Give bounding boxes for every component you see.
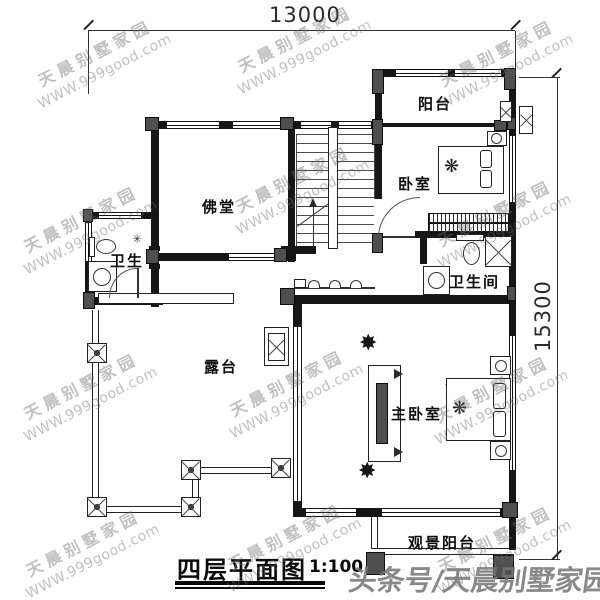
window — [306, 508, 356, 517]
title-underline — [175, 581, 325, 585]
counter-fixture — [329, 280, 341, 288]
plant-icon: ✸ — [358, 461, 376, 483]
counter-cabinet — [294, 279, 306, 288]
footer-watermark: 头条号/天晨别墅家园 — [346, 559, 600, 599]
terrace-railing — [92, 310, 99, 513]
room-label-balcony-top: 阳台 — [418, 93, 452, 114]
room-label-view-balcony: 观景阳台 — [408, 532, 476, 553]
window — [99, 212, 141, 219]
toilet-bowl — [463, 242, 480, 265]
wall — [151, 121, 159, 251]
window — [167, 121, 219, 129]
column-pier — [83, 292, 95, 309]
stair-stringer — [328, 127, 338, 249]
column-pier — [280, 117, 294, 130]
window — [293, 327, 302, 501]
extension-line — [519, 77, 560, 78]
wall — [509, 517, 516, 550]
planter-box-inner — [268, 333, 285, 361]
wardrobe — [428, 213, 509, 233]
column-ornament — [181, 497, 201, 517]
toilet-tank — [456, 234, 484, 241]
wall — [381, 123, 497, 127]
column-pier — [274, 248, 287, 262]
toilet-tank — [89, 237, 95, 257]
washbasin — [428, 272, 445, 289]
column-pier — [372, 69, 384, 94]
washbasin — [93, 268, 111, 286]
pillow — [480, 170, 492, 188]
window — [382, 508, 500, 517]
arrow-icon — [394, 447, 403, 457]
window — [396, 69, 448, 77]
plant-pot — [495, 445, 507, 457]
room-label-buddha-hall: 佛堂 — [202, 196, 236, 217]
dimension-line-top — [88, 30, 515, 31]
column-ornament — [87, 343, 107, 363]
pillow — [480, 150, 492, 168]
blanket-pattern-icon: ❋ — [452, 400, 467, 418]
pillow — [493, 383, 506, 409]
counter-fixture — [350, 280, 362, 288]
room-label-bedroom: 卧室 — [398, 173, 432, 194]
door-leaf — [137, 268, 139, 298]
room-label-terrace: 露台 — [204, 356, 238, 377]
arrowhead-icon — [309, 198, 317, 207]
extension-line — [515, 31, 516, 71]
dimension-tick — [510, 20, 520, 30]
tv-screen — [376, 383, 388, 444]
plan-title: 四层平面图 — [177, 550, 307, 585]
window — [301, 121, 331, 129]
column-ornament — [181, 460, 201, 480]
stair-direction-line — [313, 206, 314, 248]
wall — [288, 121, 295, 262]
dimension-height-label: 15300 — [531, 290, 555, 352]
ac-unit-symbol — [519, 106, 533, 134]
column-pier — [145, 117, 159, 131]
room-label-bathroom-left: 卫生 — [110, 250, 144, 271]
wall — [293, 295, 516, 304]
watermark: 天晨别墅家园WWW.999good.com — [198, 331, 386, 453]
door-frame — [149, 264, 160, 269]
column-ornament — [271, 458, 291, 478]
column-pier — [280, 288, 295, 305]
column-pier — [502, 502, 518, 518]
room-label-master-bedroom: 主卧室 — [391, 403, 442, 424]
pillow — [493, 411, 506, 437]
wall — [420, 238, 427, 264]
door-leaf — [500, 101, 512, 122]
column-pier — [83, 209, 93, 222]
column-pier — [372, 119, 383, 145]
plant-icon: ✸ — [359, 333, 377, 355]
arrow-icon — [394, 369, 403, 379]
column-pier — [507, 286, 516, 301]
column-pier — [146, 249, 159, 264]
door-swing-arc — [378, 197, 420, 238]
window — [339, 121, 371, 129]
room-label-bathroom-right: 卫生间 — [449, 271, 500, 292]
plant-pot — [491, 133, 502, 144]
window — [509, 136, 516, 202]
dimension-tick — [83, 20, 93, 30]
extension-line — [88, 31, 89, 94]
column-pier — [504, 68, 516, 90]
counter-fixture — [308, 280, 320, 288]
window — [455, 69, 501, 77]
column-ornament — [87, 497, 107, 517]
blanket-pattern-icon: ❋ — [444, 158, 459, 176]
plant-pot — [495, 360, 507, 372]
watermark: 天晨别墅家园WWW.999good.com — [6, 1, 194, 123]
dimension-line-right — [557, 77, 558, 560]
shower — [485, 236, 512, 267]
balcony-railing — [371, 517, 378, 552]
dimension-width-label: 13000 — [269, 3, 341, 27]
window — [233, 121, 283, 129]
title-underline — [175, 587, 325, 589]
floor-plan-canvas: 天晨别墅家园WWW.999good.com天晨别墅家园WWW.999good.c… — [0, 0, 600, 600]
light-fixture-icon: ✳ — [132, 233, 142, 245]
